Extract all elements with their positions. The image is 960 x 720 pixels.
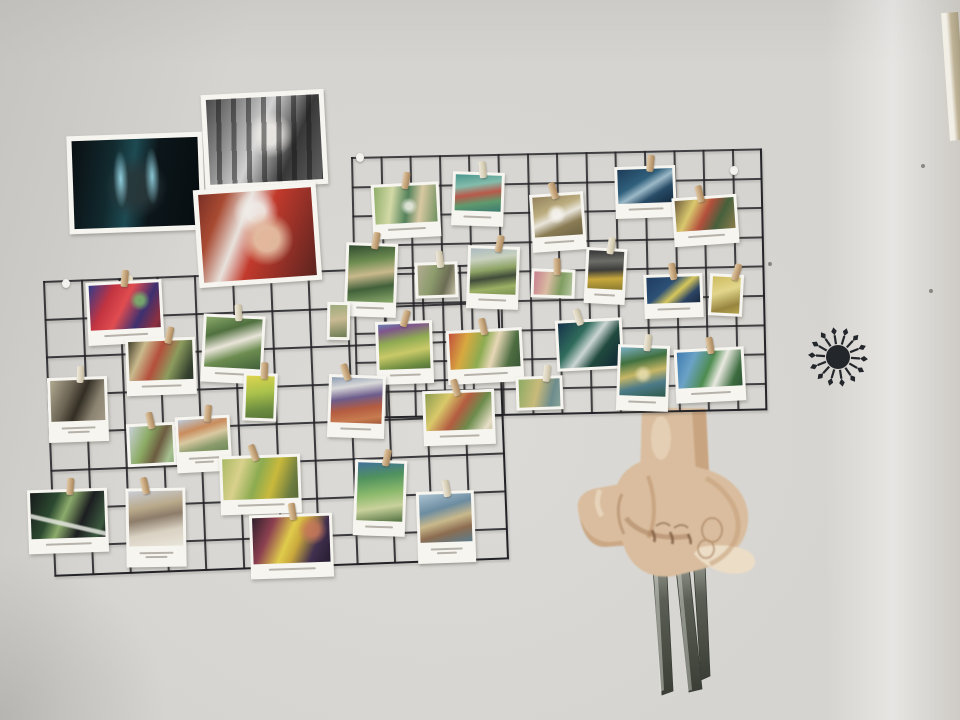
photo-print [193, 182, 323, 288]
postcard [27, 488, 109, 555]
wall-speck [768, 262, 772, 266]
postcard-artwork [245, 376, 274, 419]
photo-print [66, 132, 205, 235]
postcard-artwork [677, 349, 743, 388]
postcard-artwork [675, 197, 736, 232]
postcard [614, 165, 677, 219]
caption-line [268, 567, 316, 571]
caption-area [129, 379, 193, 393]
caption-line [140, 552, 173, 555]
caption-line [688, 234, 725, 239]
postcard [371, 181, 442, 239]
caption-line [356, 306, 385, 309]
clothespin [261, 362, 269, 379]
caption-line [238, 503, 285, 507]
postcard-artwork [30, 491, 106, 540]
caption-line [463, 215, 492, 218]
caption-line [340, 427, 372, 430]
clothespin [120, 270, 128, 288]
postcard-artwork [617, 168, 673, 204]
clothespin [76, 366, 84, 383]
clothespin [203, 404, 211, 422]
postcard [674, 346, 747, 404]
postcard-artwork [356, 462, 404, 522]
wall-corner-strip [941, 12, 960, 141]
postcard-artwork [646, 276, 700, 304]
wall-hook [62, 279, 70, 288]
postcard [466, 245, 520, 310]
caption-line [657, 307, 690, 310]
caption-area [356, 520, 402, 534]
caption-line [195, 460, 215, 463]
clothespin [553, 258, 561, 275]
caption-line [365, 525, 394, 528]
postcard-artwork [374, 184, 438, 224]
postcard-artwork [534, 271, 573, 295]
postcard-artwork [50, 379, 105, 422]
clawed-hand-decal [556, 398, 771, 698]
caption-area [330, 422, 381, 436]
caption-area [426, 429, 492, 443]
postcard-artwork [89, 282, 161, 331]
caption-line [146, 556, 168, 558]
postcard [416, 490, 476, 564]
postcard [414, 261, 458, 298]
caption-line [478, 298, 507, 301]
wall-speck [929, 289, 933, 293]
caption-line [431, 547, 463, 550]
caption-line [464, 372, 507, 376]
postcard-artwork [469, 248, 517, 295]
postcard [47, 376, 109, 443]
caption-area [129, 546, 183, 565]
postcard-artwork [425, 392, 492, 431]
postcard-artwork [619, 347, 667, 397]
caption-line [68, 431, 90, 434]
postcard [446, 327, 525, 385]
postcard [584, 247, 628, 305]
caption-line [544, 240, 574, 244]
postcard-artwork [129, 425, 174, 464]
caption-line [104, 333, 147, 337]
wall-photo-scene [0, 0, 960, 720]
starburst-decal [805, 324, 871, 390]
caption-line [389, 373, 421, 376]
wall-hook [730, 166, 738, 175]
caption-area [254, 562, 331, 577]
postcard-artwork [178, 418, 229, 453]
postcard-artwork [532, 194, 583, 237]
postcard-artwork [519, 378, 561, 407]
postcard-artwork [417, 264, 455, 295]
wall-speck [921, 164, 925, 168]
caption-area [376, 221, 439, 236]
postcard [327, 374, 386, 439]
postcard-artwork [419, 493, 473, 543]
postcard [643, 273, 703, 319]
caption-area [469, 293, 515, 307]
wall-hook [356, 153, 364, 162]
hand-drawing [578, 408, 755, 577]
caption-area [51, 420, 106, 440]
caption-line [62, 426, 96, 429]
clothespin [66, 478, 74, 495]
postcard [353, 459, 408, 537]
postcard [616, 344, 670, 412]
caption-area [679, 385, 744, 400]
caption-line [436, 552, 457, 555]
caption-line [142, 384, 182, 387]
postcard-artwork [128, 340, 193, 381]
postcard-artwork [347, 245, 395, 303]
caption-area [380, 368, 431, 382]
postcard-artwork [204, 317, 263, 370]
caption-area [535, 234, 584, 249]
caption-area [454, 210, 500, 224]
caption-line [388, 227, 426, 231]
postcard-artwork [558, 320, 621, 368]
photo-print [201, 89, 329, 190]
caption-area [421, 541, 474, 561]
clothespin [646, 155, 655, 173]
postcard-artwork [330, 305, 348, 337]
postcard [708, 273, 744, 317]
postcard-artwork [449, 330, 521, 370]
caption-line [594, 293, 616, 296]
postcard [242, 372, 278, 421]
postcard [451, 171, 505, 227]
clothespin [234, 304, 242, 321]
postcard [125, 487, 186, 567]
caption-line [691, 391, 731, 395]
caption-line [46, 542, 92, 546]
postcard [344, 242, 399, 318]
photo-print-artwork [72, 137, 201, 229]
caption-area [619, 395, 665, 409]
clothespin [435, 251, 444, 269]
postcard-artwork [455, 174, 502, 212]
postcard [422, 389, 496, 446]
photo-print-artwork [198, 187, 317, 283]
postcard-artwork [330, 377, 383, 424]
postcard-artwork [252, 516, 331, 565]
postcard-artwork [222, 457, 298, 501]
postcard-artwork [128, 491, 183, 547]
postcard [327, 302, 351, 340]
postcard [531, 268, 576, 299]
caption-area [347, 301, 393, 315]
postcard [126, 422, 177, 468]
photo-print-artwork [206, 94, 323, 185]
postcard [85, 279, 164, 346]
clothespin [542, 364, 551, 382]
postcard [125, 337, 197, 396]
caption-area [32, 537, 106, 552]
caption-area [451, 366, 522, 382]
postcard [555, 317, 625, 371]
caption-line [628, 400, 657, 403]
postcard-artwork [587, 250, 624, 290]
postcard [529, 191, 587, 253]
caption-line [629, 207, 663, 210]
postcard [515, 375, 563, 411]
postcard [671, 194, 739, 247]
postcard [249, 513, 334, 580]
caption-area [587, 288, 623, 302]
caption-line [189, 456, 219, 460]
caption-area [618, 202, 673, 216]
postcard-artwork [378, 323, 431, 370]
postcard-artwork [711, 276, 741, 313]
caption-area [647, 302, 700, 316]
caption-line [439, 434, 480, 437]
